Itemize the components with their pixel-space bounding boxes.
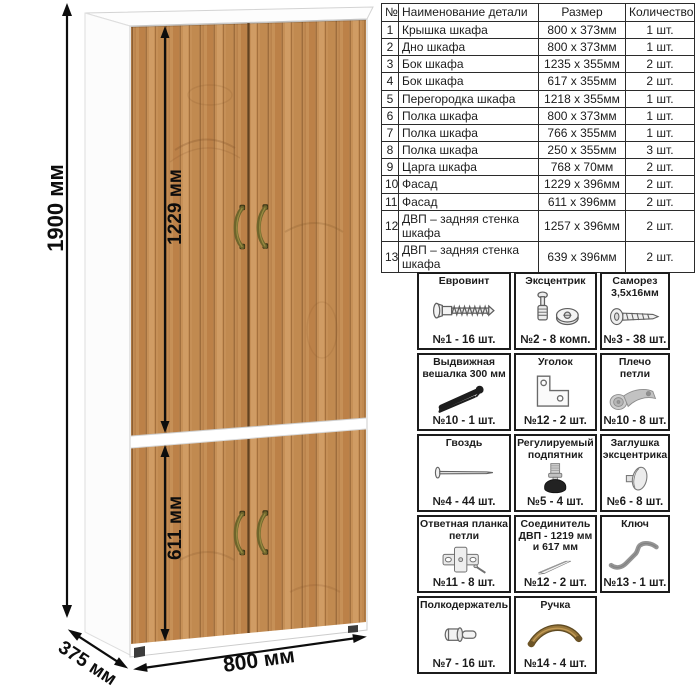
hinge-arm-icon <box>603 380 668 415</box>
table-row: 10Фасад1229 x 396мм2 шт. <box>382 176 695 193</box>
table-cell: 800 x 373мм <box>539 107 626 124</box>
table-cell: 2 шт. <box>626 242 695 273</box>
hardware-item: Заглушка эксцентрика№6 - 8 шт. <box>600 434 671 512</box>
table-cell: Фасад <box>399 193 539 210</box>
hardware-item: Гвоздь№4 - 44 шт. <box>417 434 511 512</box>
hardware-item-count: №12 - 2 шт. <box>524 577 587 590</box>
table-cell: 617 x 355мм <box>539 73 626 90</box>
hardware-item-name: Выдвижная вешалка 300 мм <box>420 357 508 380</box>
lower-facade-dimension-label: 611 мм <box>165 496 187 560</box>
pull-out-hanger-icon <box>420 380 508 415</box>
table-cell: 2 шт. <box>626 73 695 90</box>
table-cell: 1 шт. <box>626 39 695 56</box>
hardware-item-name: Полкодержатель <box>420 600 508 612</box>
table-cell: 250 x 355мм <box>539 142 626 159</box>
table-cell: Фасад <box>399 176 539 193</box>
parts-table-header-row: №Наименование деталиРазмерКоличество <box>382 4 695 22</box>
table-cell: 1 шт. <box>626 90 695 107</box>
table-cell: 639 x 396мм <box>539 242 626 273</box>
hardware-item-count: №2 - 8 комп. <box>520 334 590 347</box>
assembly-sheet: 1900 мм 1229 мм 611 мм 800 мм 375 мм №На… <box>0 0 700 700</box>
table-cell: 5 <box>382 90 399 107</box>
hex-key-icon <box>603 531 668 578</box>
table-cell: 2 <box>382 39 399 56</box>
hardware-grid: Евровинт№1 - 16 шт.Эксцентрик№2 - 8 комп… <box>417 272 660 674</box>
upper-facade-dimension-label: 1229 мм <box>165 169 187 245</box>
hardware-item-name: Ключ <box>621 519 649 531</box>
hardware-item: Саморез 3,5х16мм№3 - 38 шт. <box>600 272 671 350</box>
table-cell: 2 шт. <box>626 159 695 176</box>
left-foot <box>134 646 145 658</box>
height-dimension-label: 1900 мм <box>43 164 69 252</box>
table-cell: 9 <box>382 159 399 176</box>
hardware-item-count: №13 - 1 шт. <box>604 577 667 590</box>
right-foot <box>348 625 358 633</box>
height-arrow <box>62 3 72 618</box>
hardware-item-name: Ручка <box>540 600 570 612</box>
table-cell: 2 шт. <box>626 176 695 193</box>
table-cell: 11 <box>382 193 399 210</box>
table-cell: 6 <box>382 107 399 124</box>
hardware-item-name: Эксцентрик <box>525 276 585 288</box>
hardware-item: Выдвижная вешалка 300 мм№10 - 1 шт. <box>417 353 511 431</box>
cabinet-side-panel <box>85 13 130 655</box>
hardware-item-name: Регулируемый подпятник <box>517 438 594 461</box>
table-cell: 2 шт. <box>626 210 695 241</box>
table-row: 9Царга шкафа768 x 70мм2 шт. <box>382 159 695 176</box>
hardware-item: Эксцентрик№2 - 8 комп. <box>514 272 597 350</box>
table-cell: Бок шкафа <box>399 56 539 73</box>
corner-bracket-icon <box>517 369 594 416</box>
hardware-item: Плечо петли№10 - 8 шт. <box>600 353 671 431</box>
table-cell: ДВП – задняя стенка шкафа <box>399 210 539 241</box>
hardware-item: Регулируемый подпятник№5 - 4 шт. <box>514 434 597 512</box>
hardware-item-name: Заглушка эксцентрика <box>603 438 668 461</box>
table-cell: 2 шт. <box>626 56 695 73</box>
table-cell: 1235 x 355мм <box>539 56 626 73</box>
table-cell: 1 шт. <box>626 124 695 141</box>
table-row: 2Дно шкафа800 x 373мм1 шт. <box>382 39 695 56</box>
hardware-item: Уголок№12 - 2 шт. <box>514 353 597 431</box>
table-cell: ДВП – задняя стенка шкафа <box>399 242 539 273</box>
euro-screw-icon <box>420 288 508 335</box>
cabinet <box>85 7 373 658</box>
table-cell: 3 шт. <box>626 142 695 159</box>
hardware-item: Ключ№13 - 1 шт. <box>600 515 671 593</box>
table-row: 6Полка шкафа800 x 373мм1 шт. <box>382 107 695 124</box>
table-cell: Полка шкафа <box>399 142 539 159</box>
parts-table: №Наименование деталиРазмерКоличество1Кры… <box>381 3 695 273</box>
hardware-item-count: №12 - 2 шт. <box>524 415 587 428</box>
table-row: 7Полка шкафа766 x 355мм1 шт. <box>382 124 695 141</box>
hardware-item-count: №14 - 4 шт. <box>524 658 587 671</box>
table-cell: 3 <box>382 56 399 73</box>
hardware-item-count: №7 - 16 шт. <box>433 658 496 671</box>
table-cell: 766 x 355мм <box>539 124 626 141</box>
nail-icon <box>420 450 508 497</box>
hardware-item: Ответная планка петли№11 - 8 шт. <box>417 515 511 593</box>
cam-cap-icon <box>603 461 668 496</box>
table-cell: Бок шкафа <box>399 73 539 90</box>
hdf-connector-icon <box>517 554 594 578</box>
table-row: 13ДВП – задняя стенка шкафа639 x 396мм2 … <box>382 242 695 273</box>
hardware-item-count: №6 - 8 шт. <box>607 496 663 509</box>
table-cell: 800 x 373мм <box>539 39 626 56</box>
table-cell: Полка шкафа <box>399 124 539 141</box>
hardware-item: Полкодержатель№7 - 16 шт. <box>417 596 511 674</box>
table-row: 12ДВП – задняя стенка шкафа1257 x 396мм2… <box>382 210 695 241</box>
hardware-item-name: Гвоздь <box>446 438 483 450</box>
hardware-item-name: Ответная планка петли <box>420 519 508 542</box>
table-row: 5Перегородка шкафа1218 x 355мм1 шт. <box>382 90 695 107</box>
table-cell: Царга шкафа <box>399 159 539 176</box>
parts-table-header: Наименование детали <box>399 4 539 22</box>
hardware-item: Евровинт№1 - 16 шт. <box>417 272 511 350</box>
table-cell: 7 <box>382 124 399 141</box>
table-cell: 10 <box>382 176 399 193</box>
hardware-item-name: Саморез 3,5х16мм <box>603 276 668 299</box>
hardware-item-count: №4 - 44 шт. <box>433 496 496 509</box>
hardware-item-count: №1 - 16 шт. <box>433 334 496 347</box>
hardware-item-count: №5 - 4 шт. <box>527 496 583 509</box>
hardware-item-count: №3 - 38 шт. <box>604 334 667 347</box>
hardware-item-count: №11 - 8 шт. <box>433 577 495 590</box>
table-cell: Перегородка шкафа <box>399 90 539 107</box>
table-cell: 2 шт. <box>626 193 695 210</box>
hardware-item-name: Евровинт <box>439 276 490 288</box>
table-cell: 1218 x 355мм <box>539 90 626 107</box>
screw-icon <box>603 299 668 334</box>
table-cell: 4 <box>382 73 399 90</box>
table-cell: 1 <box>382 22 399 39</box>
table-cell: Полка шкафа <box>399 107 539 124</box>
table-row: 8Полка шкафа250 x 355мм3 шт. <box>382 142 695 159</box>
table-cell: 800 x 373мм <box>539 22 626 39</box>
table-cell: 1257 x 396мм <box>539 210 626 241</box>
table-row: 3Бок шкафа1235 x 355мм2 шт. <box>382 56 695 73</box>
handle-icon <box>517 612 594 659</box>
parts-table-header: Размер <box>539 4 626 22</box>
table-cell: 8 <box>382 142 399 159</box>
shelf-pin-icon <box>420 612 508 659</box>
hardware-item-name: Уголок <box>538 357 573 369</box>
hardware-item-count: №10 - 8 шт. <box>604 415 667 428</box>
table-cell: 1 шт. <box>626 107 695 124</box>
table-cell: 13 <box>382 242 399 273</box>
hinge-plate-icon <box>420 542 508 577</box>
hardware-grid-empty-cell <box>600 596 671 674</box>
hardware-item-name: Плечо петли <box>603 357 668 380</box>
table-cell: 768 x 70мм <box>539 159 626 176</box>
table-row: 1Крышка шкафа800 x 373мм1 шт. <box>382 22 695 39</box>
parts-table-header: № <box>382 4 399 22</box>
hardware-item-count: №10 - 1 шт. <box>433 415 496 428</box>
table-cell: Дно шкафа <box>399 39 539 56</box>
table-cell: 12 <box>382 210 399 241</box>
hardware-item-name: Соединитель ДВП - 1219 мм и 617 мм <box>517 519 594 554</box>
table-row: 11Фасад611 x 396мм2 шт. <box>382 193 695 210</box>
hardware-item: Ручка№14 - 4 шт. <box>514 596 597 674</box>
hardware-item: Соединитель ДВП - 1219 мм и 617 мм№12 - … <box>514 515 597 593</box>
parts-table-header: Количество <box>626 4 695 22</box>
table-cell: Крышка шкафа <box>399 22 539 39</box>
table-row: 4Бок шкафа617 x 355мм2 шт. <box>382 73 695 90</box>
table-cell: 1229 x 396мм <box>539 176 626 193</box>
adjustable-foot-icon <box>517 461 594 496</box>
eccentric-cam-icon <box>517 288 594 335</box>
table-cell: 1 шт. <box>626 22 695 39</box>
table-cell: 611 x 396мм <box>539 193 626 210</box>
